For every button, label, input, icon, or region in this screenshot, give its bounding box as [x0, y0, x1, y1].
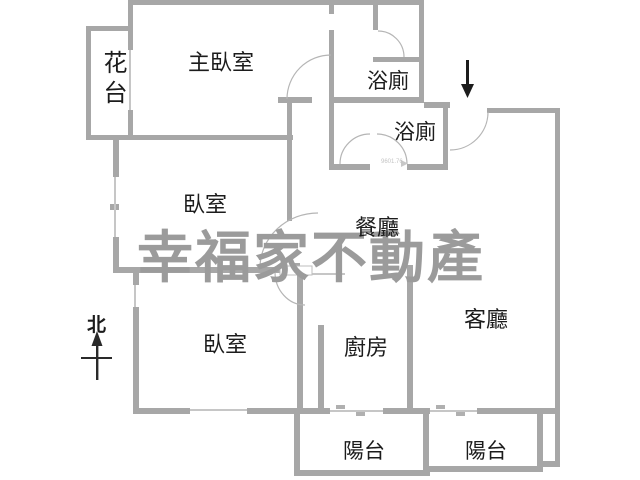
wall-bath-band-bottom: [329, 97, 424, 103]
label-north: 北: [87, 310, 106, 337]
wall-bedroom2-left-lower: [113, 237, 119, 270]
wall-flowerbed-left: [86, 26, 91, 140]
label-bathroom-upper: 浴廁: [367, 65, 409, 95]
wall-bath2-left: [329, 103, 334, 170]
wall-top: [128, 0, 424, 5]
wall-bedroom2-left-upper: [113, 138, 119, 177]
wall-bath2-right: [443, 108, 448, 170]
wall-bath1-partition-v: [373, 4, 378, 30]
door-arc-bath1-stall: [378, 31, 404, 57]
wall-balcony1-left: [294, 412, 300, 476]
door-arc-master-bedroom: [287, 55, 331, 99]
door-arc-entry: [450, 112, 488, 150]
wall-master-left-upper: [128, 5, 133, 50]
wall-balcony1-bottom: [294, 470, 430, 476]
wall-balcony2-bottom: [423, 466, 543, 472]
wall-balcony2-connector: [537, 461, 560, 467]
dimension-note: 9601.76: [381, 159, 403, 165]
wall-bedroom2-right: [287, 99, 292, 221]
label-balcony-left: 陽台: [343, 435, 385, 465]
wall-bedroom3-bottom-left: [133, 408, 190, 414]
wall-hall-stub: [278, 97, 312, 103]
slide-tick-4: [456, 412, 465, 416]
slide-tick-1: [336, 405, 345, 409]
label-kitchen: 廚房: [344, 330, 388, 362]
watermark: 幸福家不動產: [137, 213, 485, 294]
sliding-door-balcony1: [330, 410, 383, 412]
wall-master-right-a: [329, 5, 334, 14]
wall-bath1-partition-h: [373, 57, 424, 62]
label-balcony-right: 陽台: [465, 435, 507, 465]
wall-bottom-c: [477, 408, 560, 414]
wall-living-top: [487, 108, 560, 113]
wall-kitchen-left: [318, 325, 324, 412]
wall-bath2-bottom-left: [329, 164, 370, 170]
wall-bath2-bottom-right: [407, 164, 448, 170]
label-dining-room: 餐廳: [355, 210, 399, 242]
north-arrow-icon: [81, 331, 112, 380]
label-bathroom-lower: 浴廁: [394, 116, 436, 146]
label-master-bedroom: 主臥室: [188, 45, 254, 77]
entry-arrow-icon: [461, 60, 474, 98]
wall-flowerbed-top: [86, 26, 133, 31]
window-bedroom3-bottom: [190, 409, 247, 411]
wall-bedroom3-bottom-right: [247, 408, 300, 414]
wall-bottom-b: [383, 408, 430, 414]
wall-master-right-b: [329, 30, 334, 97]
floor-plan: 幸福家不動產 9601.76 主臥室 花台 浴廁 浴廁 臥室 餐廳 臥室 廚房 …: [0, 0, 640, 480]
label-bedroom-lower: 臥室: [203, 327, 247, 359]
wall-right-upper: [419, 5, 424, 103]
slide-tick-2: [356, 412, 365, 416]
label-bedroom-middle: 臥室: [183, 187, 227, 219]
wall-bedroom3-left: [133, 307, 139, 412]
label-living-room: 客廳: [464, 302, 508, 334]
sliding-door-balcony2: [430, 410, 477, 412]
wall-bath2-top-ext: [424, 102, 450, 108]
door-arc-bath2-left: [340, 134, 370, 164]
label-flower-bed: 花台: [95, 50, 130, 110]
window-bedroom3-left: [134, 285, 136, 307]
slide-tick-3: [436, 405, 445, 409]
window-bedroom2-left: [114, 177, 116, 237]
